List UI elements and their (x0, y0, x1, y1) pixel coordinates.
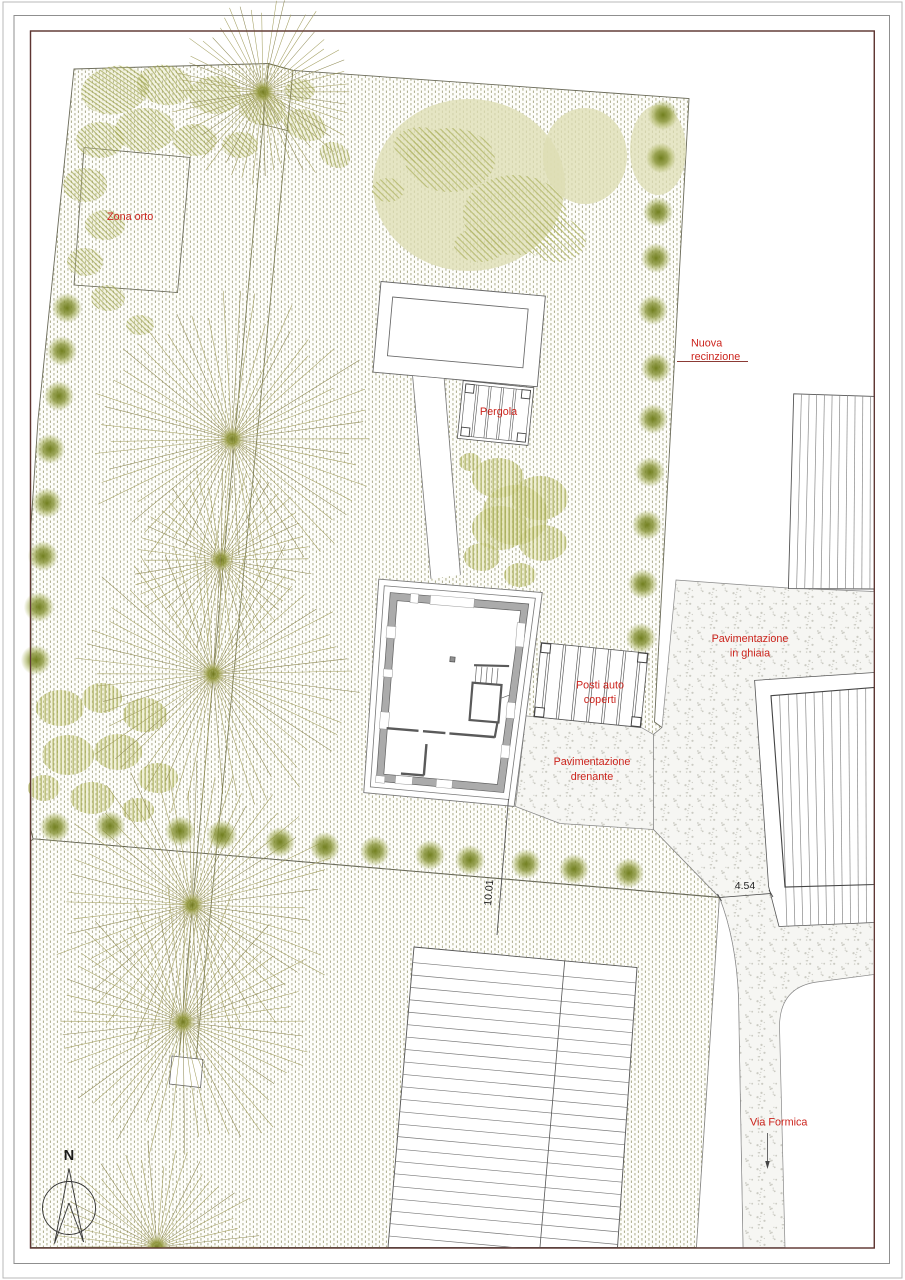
svg-text:Via Formica: Via Formica (750, 1117, 807, 1129)
svg-text:drenante: drenante (571, 771, 614, 783)
svg-text:4.54: 4.54 (735, 880, 756, 892)
svg-text:Zona orto: Zona orto (107, 211, 153, 223)
svg-text:Pavimentazione: Pavimentazione (554, 756, 631, 768)
svg-text:Pergola: Pergola (480, 406, 517, 418)
svg-text:coperti: coperti (584, 694, 616, 706)
svg-text:N: N (64, 1148, 74, 1164)
svg-text:in ghiaia: in ghiaia (730, 648, 770, 660)
svg-text:10.01: 10.01 (482, 879, 496, 906)
svg-text:Nuova: Nuova (691, 338, 722, 350)
svg-text:Pavimentazione: Pavimentazione (712, 633, 789, 645)
svg-text:Posti auto: Posti auto (576, 680, 624, 692)
